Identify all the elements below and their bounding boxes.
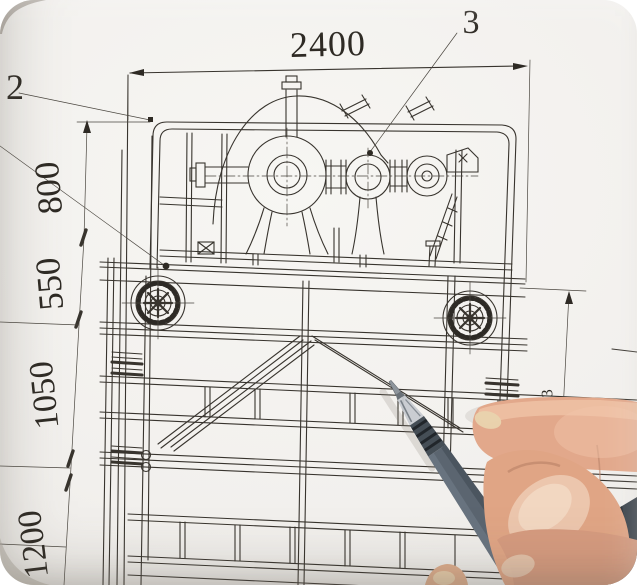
photo-of-engineering-drawing: 2400 3 2 800 550 1050 1200 1403: [0, 0, 637, 585]
dim-550-label: 550: [28, 256, 71, 312]
photo-foreground: [0, 0, 637, 585]
dim-1050-label: 1050: [23, 359, 67, 430]
dim-800-label: 800: [27, 160, 70, 216]
dim-2400-label: 2400: [289, 23, 366, 65]
balloon-2-label: 2: [6, 67, 24, 107]
paper-corner-top-left: [0, 0, 46, 34]
balloon-3-label: 3: [463, 4, 480, 41]
drawing-svg: 2400 3 2 800 550 1050 1200 1403: [0, 0, 637, 585]
bearing-left: [122, 267, 194, 339]
right-edge-line: [612, 349, 637, 352]
